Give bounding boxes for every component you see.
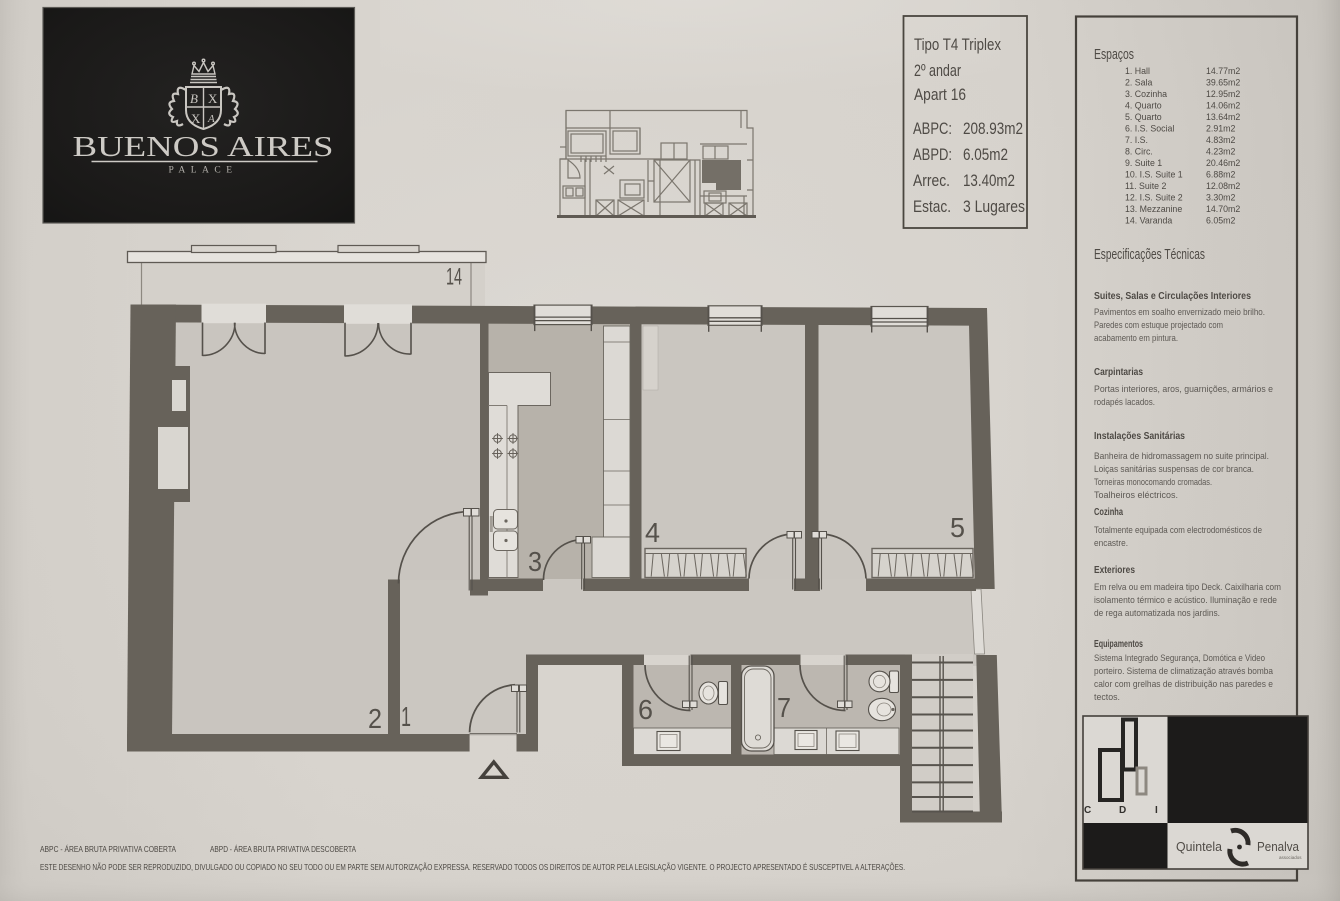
svg-text:Paredes com estuque projectado: Paredes com estuque projectado com [1094,320,1223,331]
svg-text:B: B [190,91,198,106]
svg-text:Tipo T4 Triplex: Tipo T4 Triplex [914,35,1001,54]
svg-text:2: 2 [368,703,382,734]
svg-text:encastre.: encastre. [1094,538,1128,549]
svg-text:Totalmente equipada com electr: Totalmente equipada com electrodoméstico… [1094,525,1262,536]
svg-text:11. Suite 2: 11. Suite 2 [1125,181,1167,191]
svg-text:3 Lugares: 3 Lugares [963,197,1025,216]
svg-text:Arrec.: Arrec. [913,171,950,190]
svg-text:4. Quarto: 4. Quarto [1125,100,1162,110]
svg-text:3: 3 [528,546,542,577]
svg-text:14.70m2: 14.70m2 [1206,204,1240,214]
svg-text:tectos.: tectos. [1094,692,1120,703]
svg-text:Instalações Sanitárias: Instalações Sanitárias [1094,431,1185,442]
svg-text:6.05m2: 6.05m2 [963,145,1008,164]
svg-text:rodapés lacados.: rodapés lacados. [1094,397,1155,408]
svg-text:Em relva ou em madeira tipo De: Em relva ou em madeira tipo Deck. Caixil… [1094,582,1281,593]
svg-text:6.88m2: 6.88m2 [1206,169,1235,179]
svg-text:4.23m2: 4.23m2 [1206,146,1235,156]
svg-text:4: 4 [645,517,660,548]
svg-text:14. Varanda: 14. Varanda [1125,215,1172,225]
svg-text:13.40m2: 13.40m2 [963,171,1015,190]
svg-text:14.77m2: 14.77m2 [1206,66,1240,76]
svg-text:4.83m2: 4.83m2 [1206,135,1235,145]
svg-text:12. I.S. Suite 2: 12. I.S. Suite 2 [1125,192,1183,202]
svg-text:Pavimentos em soalho enverniza: Pavimentos em soalho envernizado meio br… [1094,307,1265,318]
svg-text:A: A [207,113,215,125]
svg-text:2. Sala: 2. Sala [1125,77,1152,87]
svg-text:Apart 16: Apart 16 [914,85,966,104]
svg-text:Especificações Técnicas: Especificações Técnicas [1094,247,1205,263]
svg-text:7. I.S.: 7. I.S. [1125,135,1148,145]
svg-text:2.91m2: 2.91m2 [1206,123,1235,133]
svg-text:Torneiras monocomando cromadas: Torneiras monocomando cromadas. [1094,477,1212,488]
svg-text:X: X [191,111,201,126]
svg-text:7: 7 [777,692,791,723]
svg-text:20.46m2: 20.46m2 [1206,158,1240,168]
svg-text:14: 14 [446,264,462,291]
svg-text:PALACE: PALACE [168,166,237,176]
svg-text:Espaços: Espaços [1094,47,1134,63]
svg-text:10. I.S. Suite 1: 10. I.S. Suite 1 [1125,169,1183,179]
svg-text:Banheira de hidromassagem no: Banheira de hidromassagem no suite princ… [1094,451,1269,462]
svg-text:X: X [208,91,218,106]
svg-text:6: 6 [638,694,653,725]
svg-text:5. Quarto: 5. Quarto [1125,112,1162,122]
svg-text:6.05m2: 6.05m2 [1206,215,1235,225]
svg-text:Quintela: Quintela [1176,839,1223,854]
svg-text:3.30m2: 3.30m2 [1206,192,1235,202]
svg-text:associados: associados [1279,855,1302,860]
svg-text:de rega automatizada nos jardi: de rega automatizada nos jardins. [1094,608,1220,619]
svg-text:2º andar: 2º andar [914,61,961,80]
svg-text:8. Circ.: 8. Circ. [1125,146,1153,156]
svg-text:1. Hall: 1. Hall [1125,66,1150,76]
svg-text:I: I [1155,805,1158,816]
svg-text:1: 1 [401,701,411,732]
svg-text:Suites, Salas e Circulações In: Suites, Salas e Circulações Interiores [1094,291,1251,302]
svg-text:Penalva: Penalva [1257,839,1300,854]
svg-text:ESTE DESENHO NÃO PODE SER REPR: ESTE DESENHO NÃO PODE SER REPRODUZIDO, D… [40,862,905,872]
svg-text:5: 5 [950,512,965,543]
svg-text:ABPC - ÁREA BRUTA PRIVATIVA CO: ABPC - ÁREA BRUTA PRIVATIVA COBERTA [40,844,176,854]
svg-text:acabamento em pintura.: acabamento em pintura. [1094,333,1178,344]
svg-text:208.93m2: 208.93m2 [963,119,1023,138]
svg-text:12.95m2: 12.95m2 [1206,89,1240,99]
svg-text:9. Suite 1: 9. Suite 1 [1125,158,1162,168]
svg-text:39.65m2: 39.65m2 [1206,77,1240,87]
svg-text:D: D [1119,805,1126,816]
svg-text:14.06m2: 14.06m2 [1206,100,1240,110]
svg-text:ABPD:: ABPD: [913,145,952,164]
svg-text:porteiro. Sistema de climatiza: porteiro. Sistema de climatização atravé… [1094,666,1274,677]
svg-text:13.64m2: 13.64m2 [1206,112,1240,122]
svg-text:12.08m2: 12.08m2 [1206,181,1240,191]
svg-text:ABPC:: ABPC: [913,119,952,138]
svg-text:C: C [1084,805,1091,816]
svg-text:3. Cozinha: 3. Cozinha [1125,89,1167,99]
svg-text:Sistema Integrado Segurança, D: Sistema Integrado Segurança, Domótica e … [1094,653,1265,664]
svg-text:calor com grelhas de distribui: calor com grelhas de distribuição nas pa… [1094,679,1273,690]
svg-text:Equipamentos: Equipamentos [1094,639,1143,650]
svg-text:Exteriores: Exteriores [1094,565,1135,576]
svg-text:Cozinha: Cozinha [1094,507,1123,518]
svg-text:Loiças sanitárias suspensas de: Loiças sanitárias suspensas de cor branc… [1094,464,1254,475]
svg-text:13. Mezzanine: 13. Mezzanine [1125,204,1182,214]
svg-text:isolamento térmico e acústico.: isolamento térmico e acústico. Iluminaçã… [1094,595,1277,606]
svg-text:Carpintarias: Carpintarias [1094,367,1143,378]
svg-text:6. I.S. Social: 6. I.S. Social [1125,123,1174,133]
svg-text:Toalheiros eléctricos.: Toalheiros eléctricos. [1094,490,1178,501]
svg-text:Portas interiores, aros, guarn: Portas interiores, aros, guarnições, arm… [1094,384,1273,395]
svg-text:ABPD - ÁREA BRUTA PRIVATIVA DE: ABPD - ÁREA BRUTA PRIVATIVA DESCOBERTA [210,844,356,854]
svg-text:BUENOS AIRES: BUENOS AIRES [73,131,334,163]
svg-text:Estac.: Estac. [913,197,951,216]
